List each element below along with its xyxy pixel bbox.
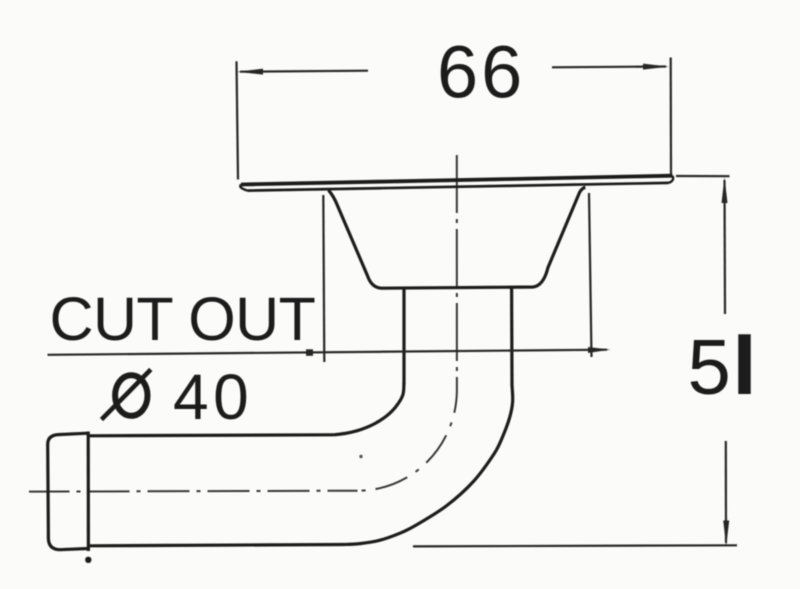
svg-text:CUT OUT: CUT OUT xyxy=(50,285,316,353)
svg-text:5: 5 xyxy=(688,323,731,411)
svg-text:40: 40 xyxy=(173,361,253,433)
svg-text:66: 66 xyxy=(437,31,525,114)
